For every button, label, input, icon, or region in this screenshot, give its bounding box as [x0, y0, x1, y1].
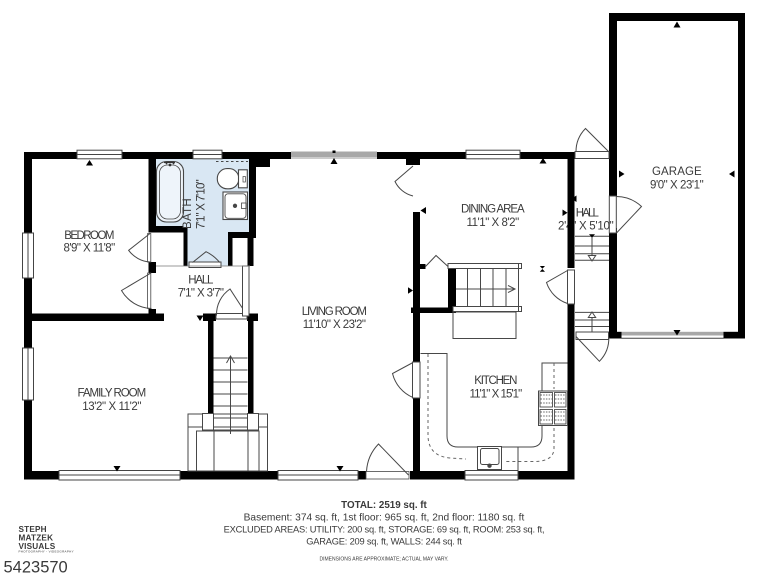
svg-text:LIVING ROOM: LIVING ROOM — [302, 306, 368, 318]
svg-text:11'1" X 8'2": 11'1" X 8'2" — [467, 217, 520, 229]
svg-text:Basement: 374 sq. ft, 1st floo: Basement: 374 sq. ft, 1st floor: 965 sq.… — [244, 513, 525, 524]
svg-text:GARAGE: 209 sq. ft, WALLS: 244: GARAGE: 209 sq. ft, WALLS: 244 sq. ft — [306, 537, 462, 547]
svg-text:9'0" X 23'1": 9'0" X 23'1" — [650, 180, 704, 192]
svg-text:FAMILY ROOM: FAMILY ROOM — [78, 388, 147, 400]
svg-text:5423570: 5423570 — [4, 559, 68, 576]
svg-text:DINING AREA: DINING AREA — [461, 204, 525, 216]
svg-text:HALL: HALL — [576, 208, 600, 220]
svg-text:DIMENSIONS ARE APPROXIMATE; AC: DIMENSIONS ARE APPROXIMATE; ACTUAL MAY V… — [319, 557, 448, 563]
svg-text:2'4" X 5'10": 2'4" X 5'10" — [558, 221, 614, 233]
svg-text:11'10" X 23'2": 11'10" X 23'2" — [303, 319, 367, 331]
svg-text:GARAGE: GARAGE — [652, 166, 702, 178]
svg-text:7'1" X 7'10": 7'1" X 7'10" — [196, 179, 208, 229]
svg-text:TOTAL: 2519 sq. ft: TOTAL: 2519 sq. ft — [341, 500, 427, 511]
svg-text:BATH: BATH — [182, 198, 194, 229]
svg-text:KITCHEN: KITCHEN — [474, 375, 518, 387]
svg-text:8'9" X 11'8": 8'9" X 11'8" — [64, 243, 116, 255]
svg-text:PHOTOGRAPHY - VIDEOGRAPHY: PHOTOGRAPHY - VIDEOGRAPHY — [19, 550, 74, 554]
svg-text:13'2" X 11'2": 13'2" X 11'2" — [82, 401, 142, 413]
svg-text:7'1" X 3'7": 7'1" X 3'7" — [178, 288, 225, 300]
svg-text:EXCLUDED AREAS: UTILITY: 200 s: EXCLUDED AREAS: UTILITY: 200 sq. ft, STO… — [224, 525, 545, 535]
svg-text:BEDROOM: BEDROOM — [64, 230, 115, 242]
svg-text:11'1" X 15'1": 11'1" X 15'1" — [470, 389, 523, 401]
svg-text:HALL: HALL — [188, 275, 214, 287]
